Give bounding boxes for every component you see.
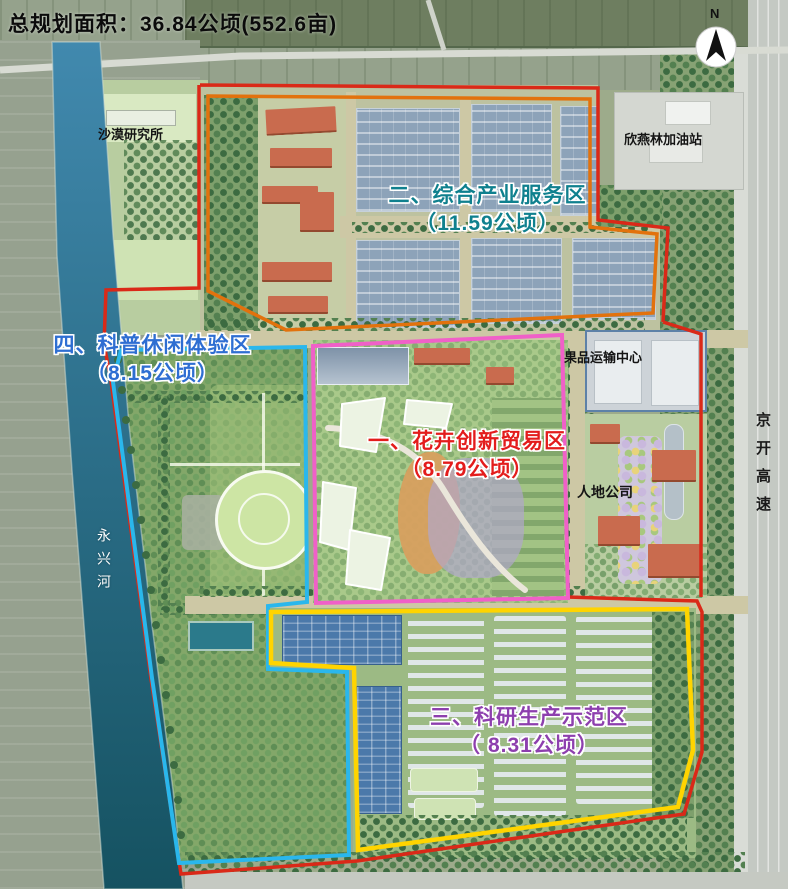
zone-3-name: 三、科研生产示范区 [396, 704, 662, 732]
zone-1-name: 一、花卉创新贸易区 [336, 428, 598, 456]
zone-4-label: 四、科普休闲体验区 （8.15公顷） [20, 332, 285, 389]
river-label: 永兴河 [94, 528, 114, 597]
zone-1-area: （8.79公顷） [336, 456, 598, 484]
zone-4-name: 四、科普休闲体验区 [20, 332, 285, 360]
highway-label: 京开高速 [752, 412, 773, 524]
north-compass [696, 27, 736, 67]
zone-4-area: （8.15公顷） [20, 360, 285, 388]
landmark-fruit-center: 果品运输中心 [564, 347, 642, 366]
zone-2-name: 二、综合产业服务区 [335, 182, 640, 210]
zone-2-area: （11.59公顷） [335, 210, 640, 238]
map-title: 总规划面积：36.84公顷(552.6亩) [8, 8, 337, 38]
compass-n-label: N [710, 6, 719, 21]
zone-3-label: 三、科研生产示范区 （ 8.31公顷） [396, 704, 662, 761]
zone-3-area: （ 8.31公顷） [396, 732, 662, 760]
landmark-rendi-company: 人地公司 [577, 482, 633, 502]
planning-map-stage: 总规划面积：36.84公顷(552.6亩) N 沙漠研究所 欣燕林加油站 果品运… [0, 0, 788, 889]
zone-2-label: 二、综合产业服务区 （11.59公顷） [335, 182, 640, 239]
top-road [0, 50, 788, 70]
landmark-desert-research-institute: 沙漠研究所 [98, 124, 163, 143]
zone-1-label: 一、花卉创新贸易区 （8.79公顷） [336, 428, 598, 485]
landmark-gas-station: 欣燕林加油站 [624, 129, 702, 148]
field-track [428, 0, 444, 50]
